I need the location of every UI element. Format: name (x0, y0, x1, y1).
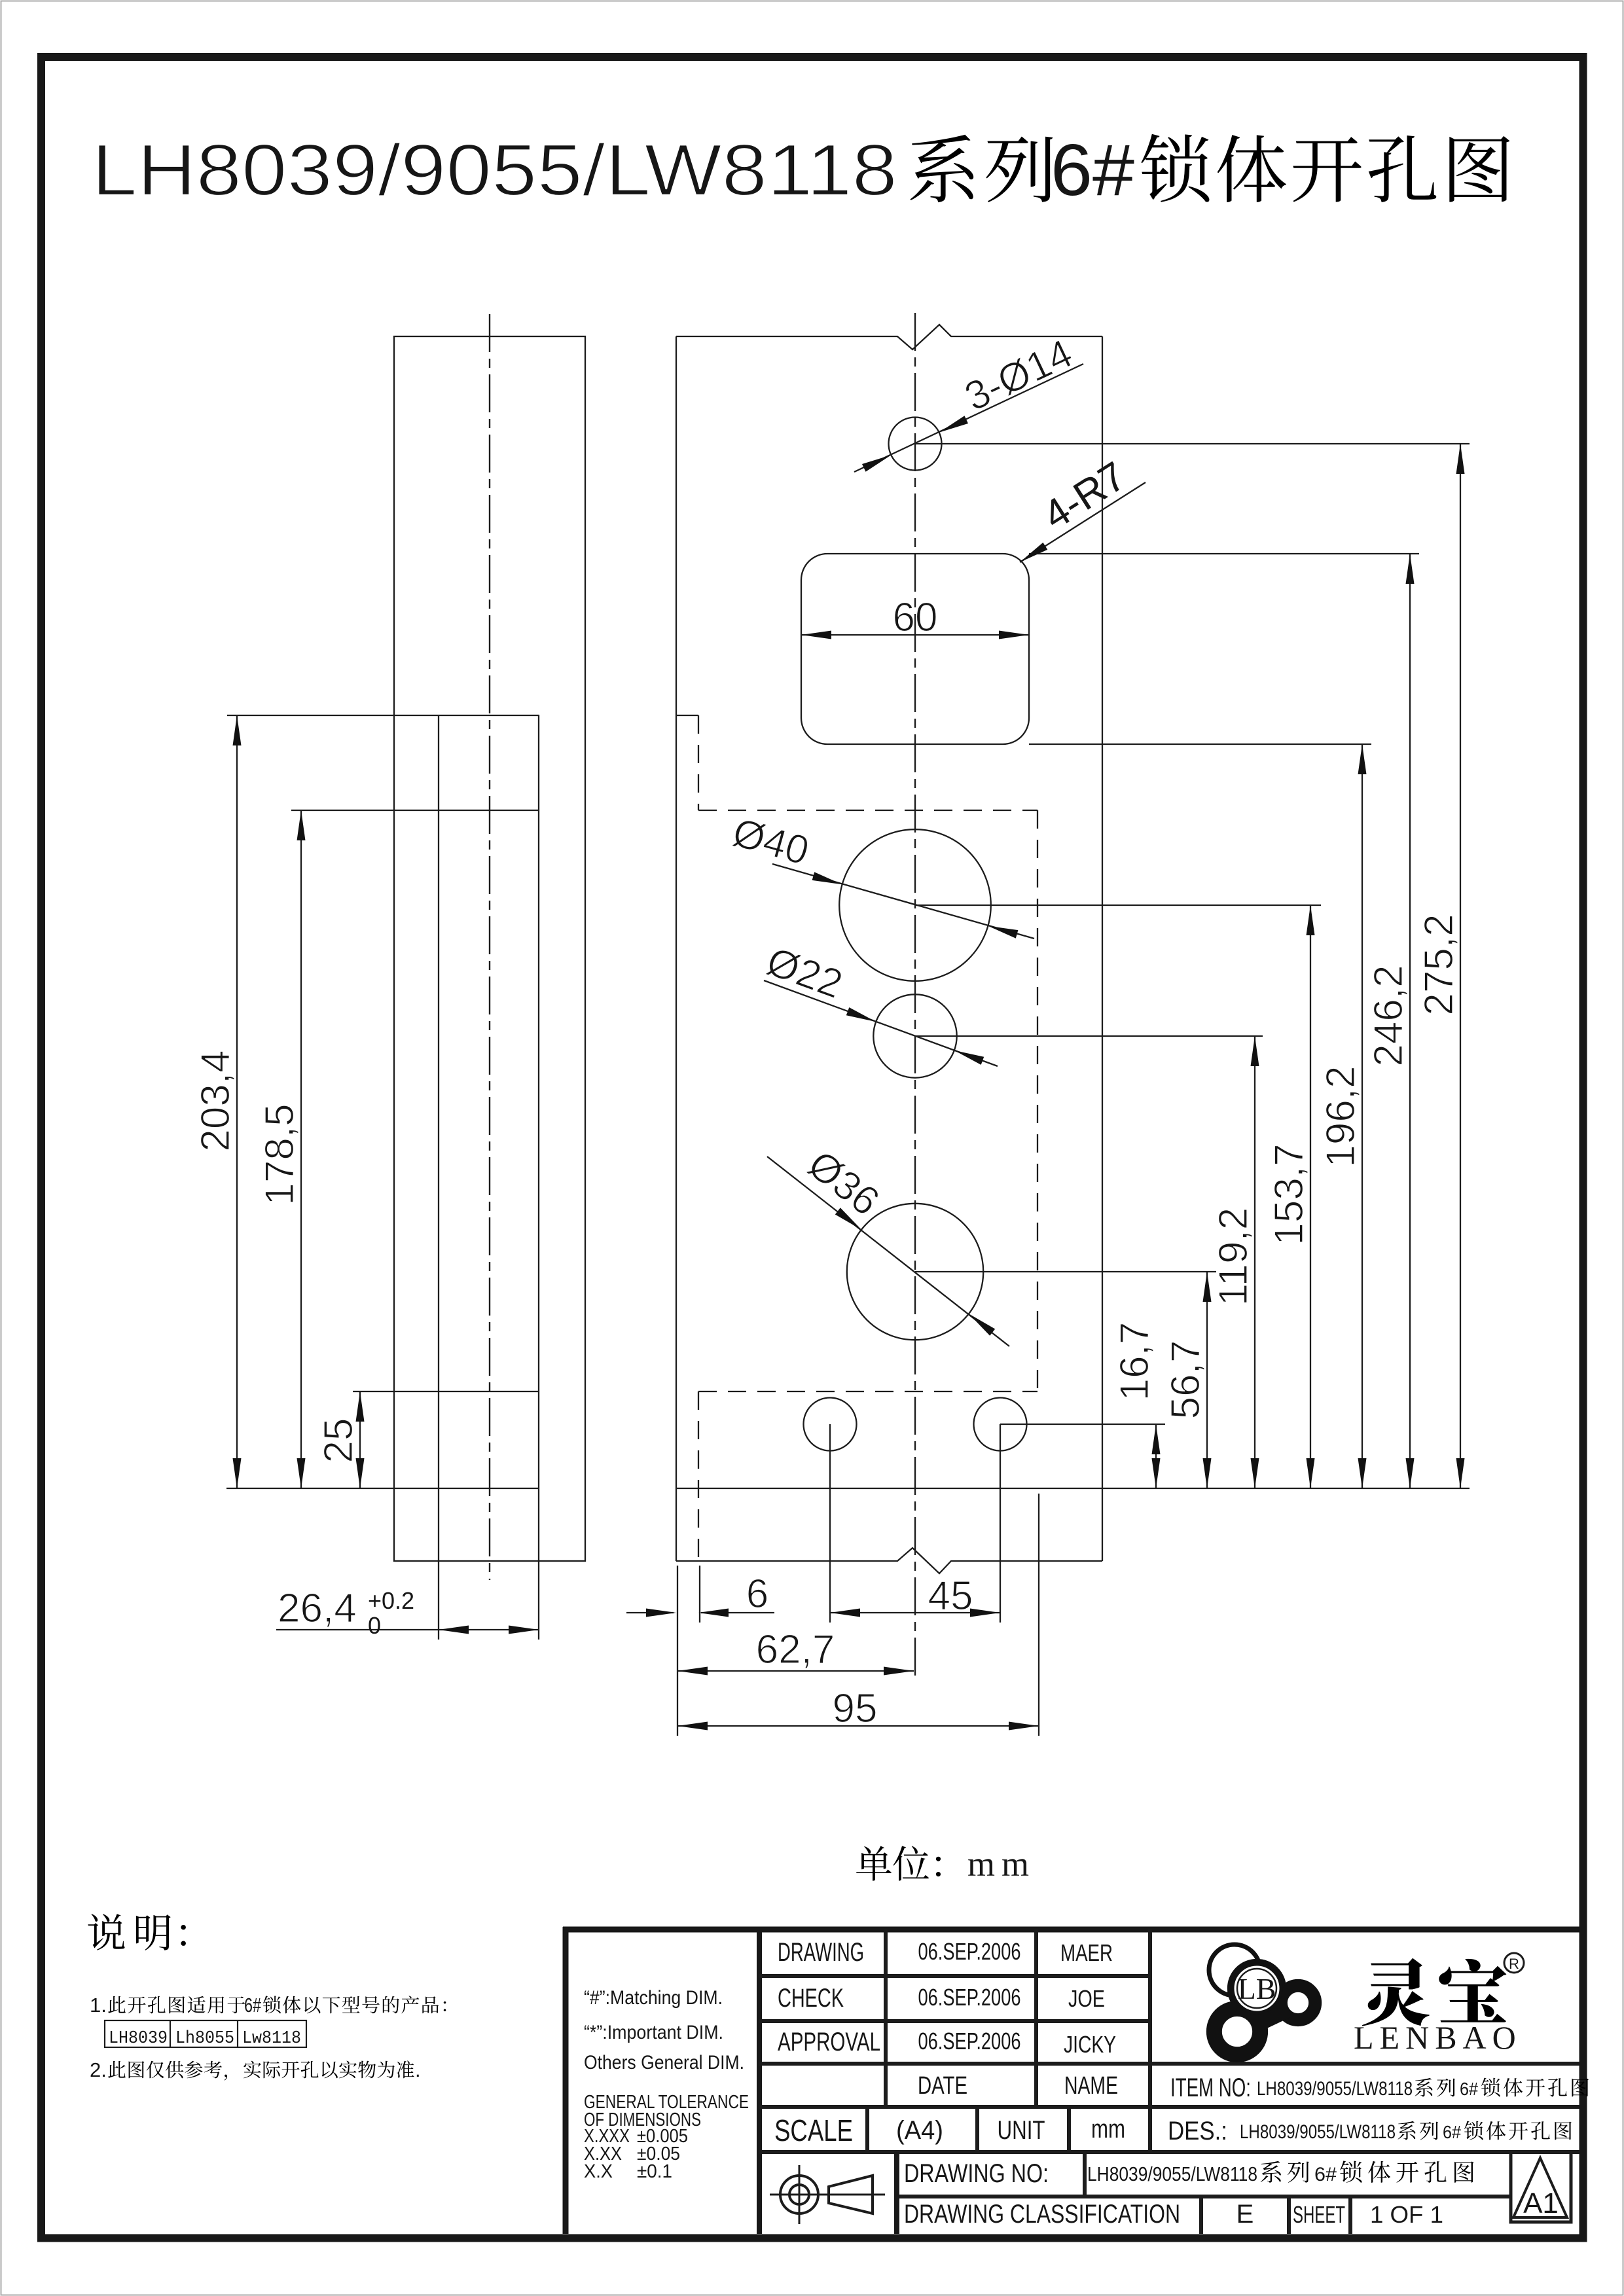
svg-text:LH8039/9055/LW8118: LH8039/9055/LW8118 (1240, 2121, 1396, 2143)
svg-text:ITEM NO:: ITEM NO: (1170, 2073, 1251, 2102)
svg-text:119,2: 119,2 (1211, 1208, 1256, 1306)
svg-text:NAME: NAME (1064, 2072, 1118, 2100)
svg-text:LH8039/9055/LW8118: LH8039/9055/LW8118 (92, 130, 897, 211)
svg-text:.: . (415, 2058, 421, 2081)
svg-text:LENBAO: LENBAO (1354, 2019, 1522, 2056)
svg-text:6#: 6# (1051, 130, 1134, 211)
svg-text:1.: 1. (90, 1994, 107, 2017)
svg-text:JOE: JOE (1068, 1985, 1105, 2012)
svg-text:E: E (1236, 2200, 1254, 2229)
svg-text:2.: 2. (90, 2058, 107, 2081)
svg-text:Lw8118: Lw8118 (242, 2029, 301, 2049)
svg-text:56,7: 56,7 (1163, 1340, 1208, 1420)
svg-text:6#: 6# (1443, 2122, 1461, 2142)
svg-text:DES.:: DES.: (1168, 2117, 1227, 2145)
svg-text:153,7: 153,7 (1267, 1143, 1312, 1245)
svg-text:“#”:Matching DIM.: “#”:Matching DIM. (584, 1987, 723, 2009)
svg-text:X.X: X.X (584, 2161, 613, 2182)
svg-text:203,4: 203,4 (193, 1050, 238, 1151)
svg-text:6#: 6# (1314, 2164, 1337, 2185)
svg-text:62,7: 62,7 (756, 1627, 835, 1672)
svg-text:178,5: 178,5 (257, 1103, 302, 1205)
svg-text:CHECK: CHECK (778, 1984, 844, 2013)
svg-text:06.SEP.2006: 06.SEP.2006 (918, 1984, 1021, 2011)
svg-text:A1: A1 (1523, 2187, 1559, 2219)
svg-text:26,4: 26,4 (278, 1586, 357, 1631)
svg-text:LH8039/9055/LW8118: LH8039/9055/LW8118 (1087, 2162, 1257, 2185)
svg-text:06.SEP.2006: 06.SEP.2006 (918, 1938, 1021, 1965)
svg-text:6#: 6# (1460, 2079, 1478, 2099)
svg-text:06.SEP.2006: 06.SEP.2006 (918, 2028, 1021, 2054)
svg-text:+0.2: +0.2 (368, 1587, 414, 1614)
svg-text:LH8039: LH8039 (109, 2029, 168, 2049)
svg-text:246,2: 246,2 (1366, 965, 1411, 1066)
svg-text:45: 45 (928, 1573, 973, 1619)
svg-text:±0.1: ±0.1 (637, 2161, 672, 2182)
svg-text:LB: LB (1238, 1972, 1276, 2005)
svg-text:16,7: 16,7 (1112, 1322, 1157, 1401)
svg-text:95: 95 (833, 1686, 878, 1731)
svg-text:“*”:Important DIM.: “*”:Important DIM. (584, 2022, 723, 2043)
svg-text:SHEET: SHEET (1293, 2201, 1345, 2228)
svg-text:275,2: 275,2 (1416, 914, 1462, 1015)
svg-text:APPROVAL: APPROVAL (778, 2028, 880, 2056)
svg-text:(A4): (A4) (896, 2116, 943, 2145)
svg-text:196,2: 196,2 (1318, 1066, 1363, 1167)
svg-text:R: R (1509, 1956, 1519, 1972)
svg-text:DRAWING NO:: DRAWING NO: (904, 2159, 1049, 2188)
svg-text:MAER: MAER (1060, 1939, 1113, 1966)
svg-text:1 OF 1: 1 OF 1 (1370, 2201, 1443, 2228)
svg-text:60: 60 (893, 595, 938, 640)
svg-text:Others General DIM.: Others General DIM. (584, 2052, 744, 2073)
svg-text:DRAWING CLASSIFICATION: DRAWING CLASSIFICATION (904, 2200, 1180, 2229)
svg-text:DRAWING: DRAWING (778, 1938, 864, 1967)
svg-text:SCALE: SCALE (774, 2113, 853, 2147)
svg-text:mm: mm (967, 1844, 1036, 1884)
svg-text:UNIT: UNIT (998, 2116, 1045, 2145)
svg-text:25: 25 (316, 1418, 361, 1463)
svg-text:mm: mm (1091, 2115, 1125, 2144)
svg-text:Lh8055: Lh8055 (175, 2029, 234, 2049)
svg-text:LH8039/9055/LW8118: LH8039/9055/LW8118 (1257, 2078, 1413, 2100)
svg-text:6: 6 (746, 1571, 768, 1617)
svg-text:0: 0 (368, 1612, 381, 1639)
svg-text:6#: 6# (244, 1994, 262, 2017)
svg-text:DATE: DATE (918, 2072, 967, 2100)
svg-text:JICKY: JICKY (1064, 2031, 1116, 2058)
